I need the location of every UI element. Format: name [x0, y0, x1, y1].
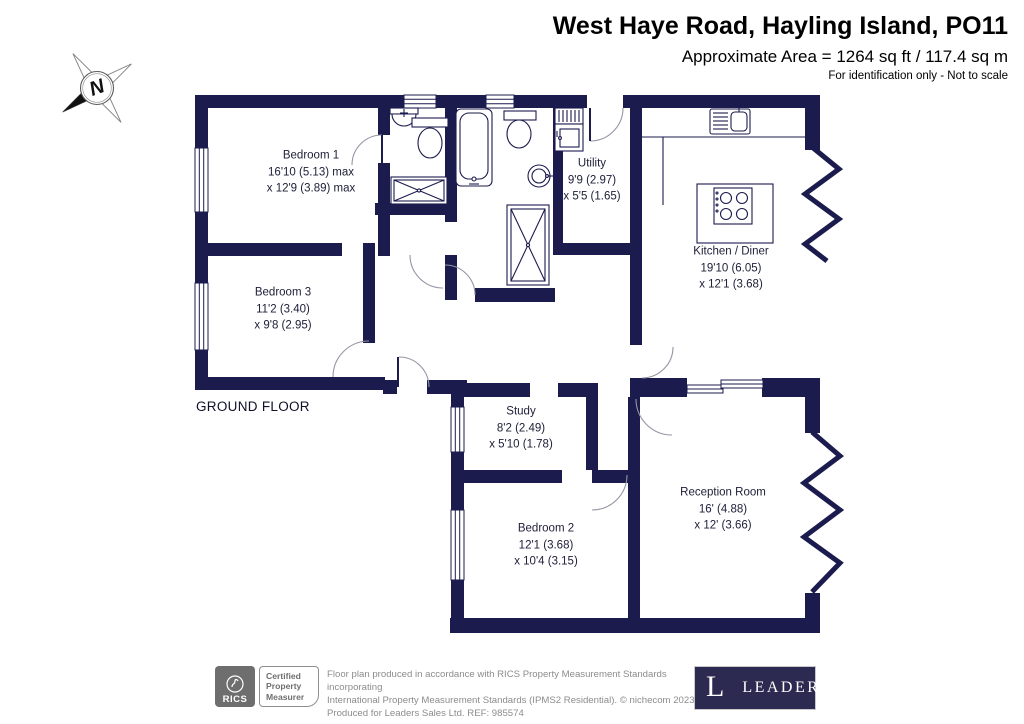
- rics-logo: RICS: [215, 666, 255, 707]
- room-label-bedroom-1: Bedroom 1 16'10 (5.13) max x 12'9 (3.89)…: [267, 147, 356, 197]
- room-name: Study: [489, 403, 553, 420]
- rics-brand-label: RICS: [223, 694, 248, 705]
- room-label-kitchen-diner: Kitchen / Diner 19'10 (6.05) x 12'1 (3.6…: [693, 243, 768, 293]
- floor-label: GROUND FLOOR: [196, 399, 310, 414]
- cert-line: Measurer: [266, 692, 318, 703]
- ensuite-toilet-icon: [412, 118, 448, 158]
- floorplan-svg: N: [0, 0, 1024, 724]
- leaders-logo: L LEADERS: [694, 666, 816, 710]
- certified-property-measurer-badge: Certified Property Measurer: [259, 666, 319, 707]
- kitchen-sink-icon: [710, 105, 750, 134]
- room-name: Bedroom 2: [514, 520, 578, 537]
- cert-line: Property: [266, 681, 318, 692]
- kitchen-island-hob-icon: [697, 184, 773, 243]
- room-label-bedroom-2: Bedroom 2 12'1 (3.68) x 10'4 (3.15): [514, 520, 578, 570]
- disclaimer-text: Floor plan produced in accordance with R…: [327, 668, 702, 720]
- room-label-bedroom-3: Bedroom 3 11'2 (3.40) x 9'8 (2.95): [254, 284, 311, 334]
- disclaimer-line: International Property Measurement Stand…: [327, 694, 702, 707]
- room-dim: 9'9 (2.97): [563, 172, 620, 189]
- room-name: Bedroom 1: [267, 147, 356, 164]
- room-dim: x 5'5 (1.65): [563, 188, 620, 205]
- room-dim: 12'1 (3.68): [514, 537, 578, 554]
- room-name: Kitchen / Diner: [693, 243, 768, 260]
- room-name: Utility: [563, 155, 620, 172]
- cert-line: Certified: [266, 671, 318, 682]
- room-dim: x 12' (3.66): [680, 517, 766, 534]
- room-dim: x 10'4 (3.15): [514, 553, 578, 570]
- compass-icon: N: [63, 54, 132, 123]
- room-name: Reception Room: [680, 484, 766, 501]
- room-dim: x 5'10 (1.78): [489, 436, 553, 453]
- ensuite-shower-icon: [391, 177, 447, 204]
- room-name: Bedroom 3: [254, 284, 311, 301]
- room-dim: 16'10 (5.13) max: [267, 164, 356, 181]
- room-dim: x 9'8 (2.95): [254, 317, 311, 334]
- room-dim: 19'10 (6.05): [693, 260, 768, 277]
- room-label-study: Study 8'2 (2.49) x 5'10 (1.78): [489, 403, 553, 453]
- room-dim: x 12'9 (3.89) max: [267, 180, 356, 197]
- bath-icon: [456, 109, 492, 186]
- room-label-reception-room: Reception Room 16' (4.88) x 12' (3.66): [680, 484, 766, 534]
- leaders-name: LEADERS: [733, 679, 832, 698]
- zigzag-openings: [804, 147, 840, 592]
- room-dim: 11'2 (3.40): [254, 301, 311, 318]
- room-dim: x 12'1 (3.68): [693, 276, 768, 293]
- disclaimer-line: Produced for Leaders Sales Ltd. REF: 985…: [327, 707, 702, 720]
- room-dim: 16' (4.88): [680, 501, 766, 518]
- room-label-utility: Utility 9'9 (2.97) x 5'5 (1.65): [563, 155, 620, 205]
- disclaimer-line: Floor plan produced in accordance with R…: [327, 668, 702, 694]
- leaders-initial: L: [695, 672, 733, 704]
- room-dim: 8'2 (2.49): [489, 420, 553, 437]
- floorplan-page: West Haye Road, Hayling Island, PO11 App…: [0, 0, 1024, 724]
- bathroom-toilet-icon: [504, 111, 536, 148]
- bathroom-basin-icon: [528, 165, 553, 187]
- utility-sink-icon: [555, 108, 583, 151]
- rics-crest-icon: [223, 674, 247, 694]
- bathroom-shower-icon: [507, 205, 549, 285]
